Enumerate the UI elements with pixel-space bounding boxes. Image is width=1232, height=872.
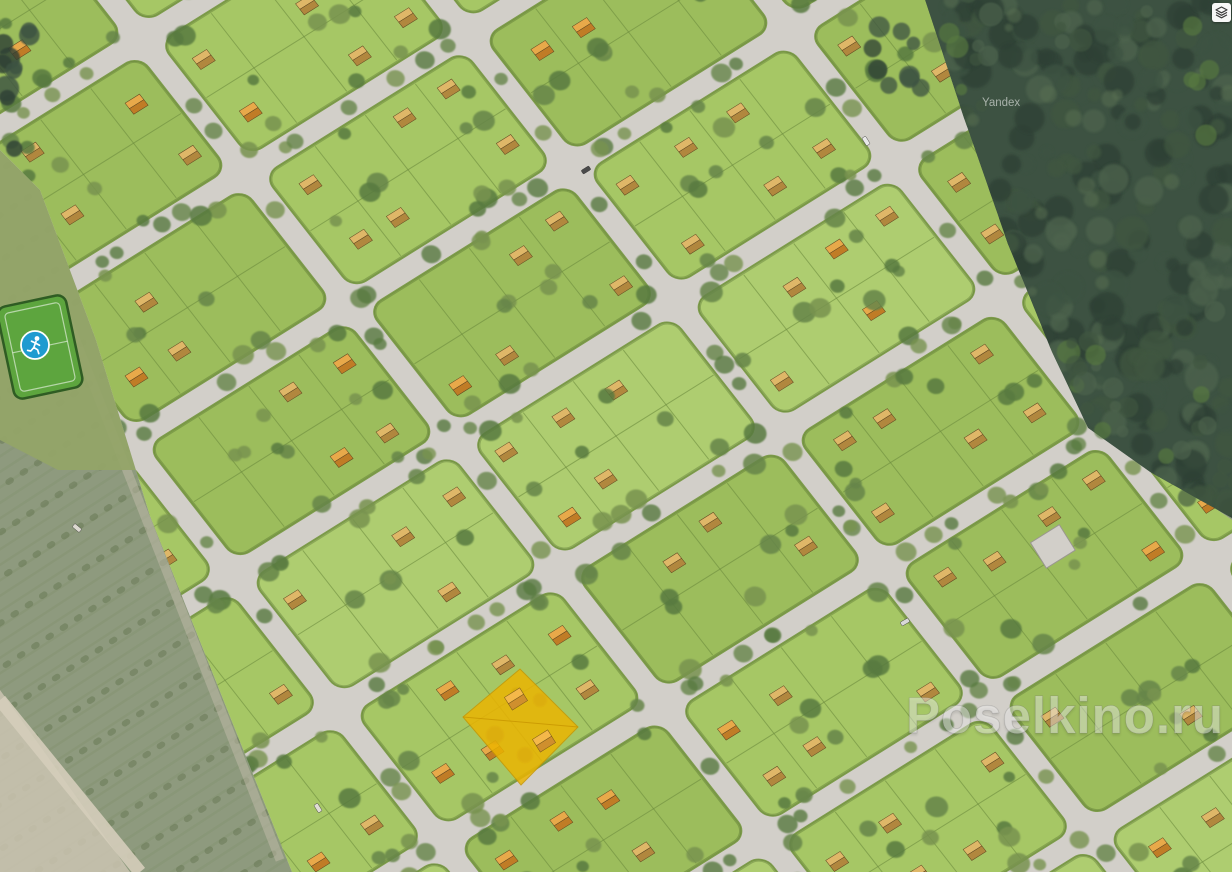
layers-icon — [1215, 6, 1228, 19]
map-viewport[interactable]: Yandex Poselkino.ru — [0, 0, 1232, 872]
watermark: Poselkino.ru — [906, 687, 1224, 744]
layers-button[interactable] — [1212, 3, 1231, 22]
map-attribution: Yandex — [982, 97, 1020, 109]
runner-icon[interactable] — [21, 331, 49, 359]
